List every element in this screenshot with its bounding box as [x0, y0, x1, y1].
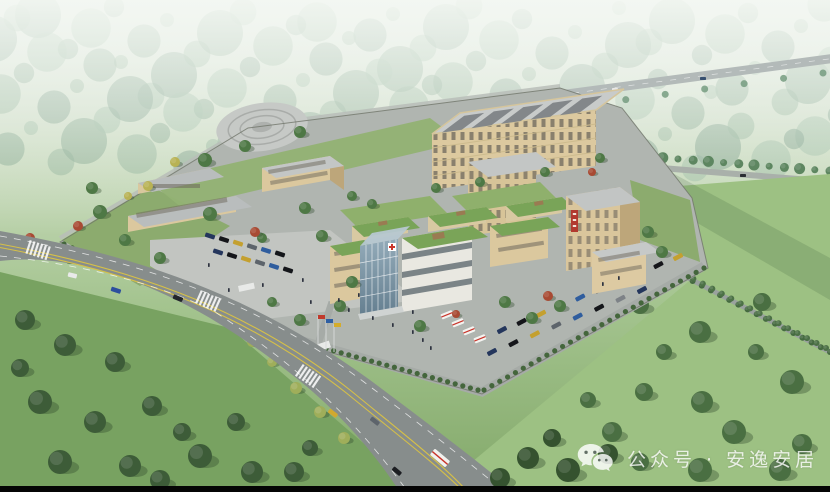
wechat-icon [576, 440, 618, 476]
bottom-black-bar [0, 486, 830, 492]
watermark-text: 公众号 · 安逸安居 [627, 445, 818, 472]
rendering-scene [0, 0, 830, 492]
blue-flag [326, 319, 333, 323]
aerial-rendering-image: 公众号 · 安逸安居 [0, 0, 830, 492]
watermark: 公众号 · 安逸安居 [576, 440, 818, 476]
yellow-flag [334, 323, 341, 327]
red-flag [318, 315, 325, 319]
